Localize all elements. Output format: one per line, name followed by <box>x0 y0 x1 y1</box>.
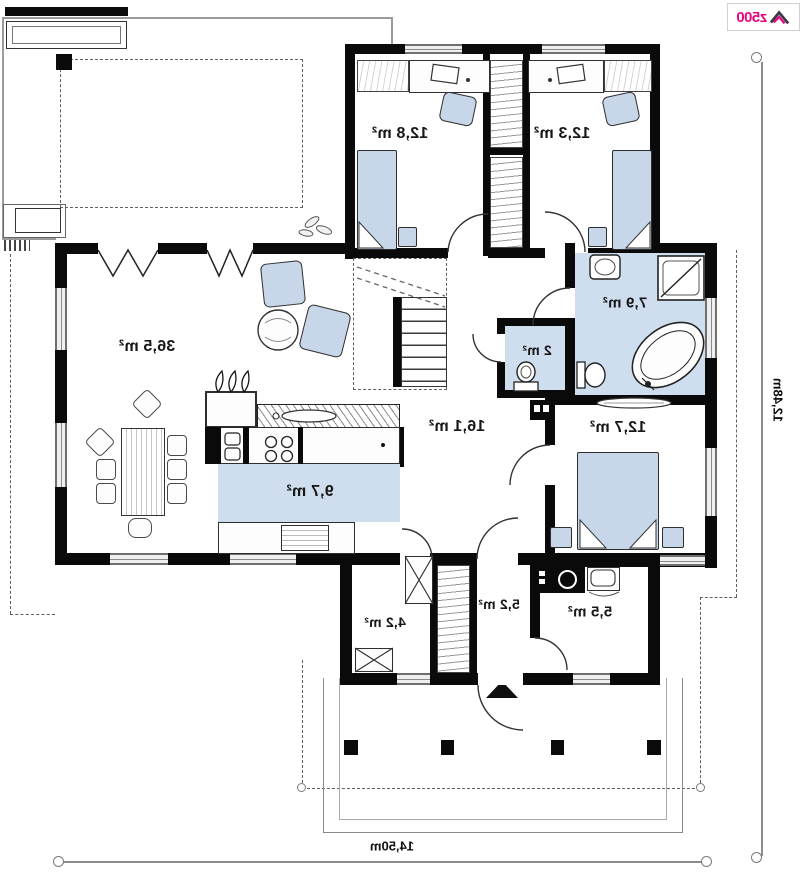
porch-column <box>344 740 358 755</box>
dimension-depth-label: 12,48m <box>771 378 786 422</box>
dining-chair <box>84 426 115 457</box>
desk <box>604 60 652 92</box>
door-arc <box>477 518 518 559</box>
wall <box>340 565 352 685</box>
armchair <box>298 303 352 358</box>
nightstand <box>588 227 607 247</box>
counter-divider <box>243 427 249 464</box>
roof-outline-right <box>700 597 701 788</box>
wc-floor <box>505 326 565 390</box>
terrace-edge <box>391 17 393 45</box>
window <box>55 423 67 487</box>
wall-hatch <box>4 240 30 251</box>
porch-inner <box>339 678 667 820</box>
bed-single <box>612 150 652 250</box>
dining-chair <box>167 435 187 456</box>
wall <box>648 553 660 685</box>
armchair <box>260 260 306 308</box>
terrace-wall <box>5 7 128 16</box>
bathroom-floor <box>575 253 705 395</box>
door-arc <box>535 638 567 670</box>
dining-table <box>121 428 165 516</box>
round-rug <box>258 310 298 350</box>
stair-treads <box>401 297 447 387</box>
leaf <box>303 215 320 230</box>
nightstand <box>398 227 417 247</box>
dining-chair <box>131 388 162 419</box>
window <box>110 553 168 565</box>
nightstand <box>550 527 572 548</box>
fireplace <box>205 391 257 428</box>
dimension-line-horizontal <box>58 861 707 863</box>
desk <box>409 60 490 93</box>
porch-column <box>551 740 564 755</box>
desk-chair <box>438 91 477 127</box>
bed-single <box>357 150 397 250</box>
wall <box>55 553 110 565</box>
roof-outline-right <box>736 250 737 597</box>
room-label-bathroom: 7,9 m² <box>603 295 648 312</box>
counter-divider <box>298 427 303 464</box>
window <box>397 673 430 685</box>
room-label-kitchen: 9,7 m² <box>286 483 333 501</box>
floor-plan: z500 <box>0 0 800 888</box>
wall <box>253 243 355 254</box>
dimension-marker <box>751 52 762 63</box>
flame-icon <box>216 371 223 392</box>
window <box>705 448 717 516</box>
folding-window <box>98 250 158 276</box>
door-arc <box>402 529 432 559</box>
roof-icon <box>770 9 790 25</box>
terrace-column <box>56 54 72 70</box>
dimension-width-label: 14,50m <box>370 839 414 854</box>
dining-chair <box>128 518 152 538</box>
roof-overhang-outline <box>60 59 303 208</box>
wall <box>470 553 477 677</box>
wall <box>555 395 717 405</box>
terrace-step-inner <box>15 208 61 233</box>
outline-marker <box>297 783 306 792</box>
wardrobe-box <box>355 648 393 672</box>
door-arc <box>510 445 550 485</box>
wall <box>345 44 355 259</box>
z500-logo: z500 <box>727 3 800 31</box>
logo-text: z500 <box>737 9 768 26</box>
room-label-hall: 16,1 m² <box>429 418 486 436</box>
room-label-wc: 2 m² <box>522 342 552 358</box>
wall <box>565 325 575 398</box>
wall <box>705 243 717 568</box>
dimension-marker <box>53 856 64 867</box>
window <box>542 44 605 54</box>
dining-chair <box>167 483 187 504</box>
terrace-window-inner <box>12 26 121 44</box>
roof-outline-right <box>700 597 737 598</box>
roof-outline-porch <box>302 660 303 788</box>
rug-pattern <box>265 319 291 342</box>
counter-end <box>205 427 221 464</box>
door-arc <box>473 334 501 362</box>
window <box>230 553 296 565</box>
door-arc <box>448 214 488 252</box>
washer-knob <box>539 571 545 576</box>
room-label-utility: 5,5 m² <box>568 604 613 621</box>
washer-knob <box>539 579 545 584</box>
window <box>705 298 717 358</box>
flame-icon <box>242 371 249 392</box>
leaf <box>315 224 332 236</box>
window <box>573 673 610 685</box>
wall <box>483 148 530 155</box>
leaf <box>299 229 314 237</box>
hall-closet <box>437 565 470 673</box>
wardrobe-box <box>405 556 433 604</box>
flame-icon <box>229 371 236 392</box>
meter-box-window <box>543 405 549 412</box>
wall <box>488 248 545 258</box>
stair-wall <box>393 297 401 387</box>
terrace-window-box <box>6 21 127 49</box>
fireplace-flames <box>216 371 249 392</box>
wall <box>158 243 207 254</box>
room-label-living: 36,5 m² <box>119 338 176 356</box>
dining-chair <box>96 483 116 504</box>
window <box>660 555 705 566</box>
meter-box-window <box>534 405 540 412</box>
kitchen-island <box>257 404 400 428</box>
porch-column <box>647 740 661 755</box>
washing-machine-drum <box>558 570 577 589</box>
plant-icon <box>299 215 333 238</box>
closet <box>490 157 523 248</box>
wall <box>545 485 555 560</box>
wall <box>497 318 505 334</box>
desk <box>357 60 409 92</box>
dimension-marker <box>701 856 712 867</box>
wall <box>497 390 575 398</box>
utility-sink <box>587 567 620 591</box>
wall <box>497 318 575 326</box>
window <box>405 44 462 54</box>
wall <box>565 243 575 288</box>
room-label-bedroom1: 12,8 m² <box>372 125 429 143</box>
door-gap <box>478 673 523 685</box>
room-label-wardrobe: 4,2 m² <box>364 614 406 630</box>
roof-outline-left <box>10 254 11 614</box>
desk <box>528 60 604 93</box>
bed-double <box>577 452 659 550</box>
dining-chair <box>96 459 116 480</box>
wall <box>296 553 400 565</box>
nightstand <box>662 527 684 548</box>
room-label-bedroom3: 12,7 m² <box>590 419 647 437</box>
window <box>55 288 67 350</box>
room-label-bedroom2: 12,3 m² <box>534 125 591 143</box>
wall <box>168 553 230 565</box>
utility-sink-edge <box>589 592 619 596</box>
outline-marker <box>696 783 705 792</box>
dining-chair <box>167 459 187 480</box>
room-label-entry: 5,2 m² <box>478 596 520 612</box>
wall <box>345 44 660 54</box>
desk-chair <box>601 91 640 127</box>
dimension-line-vertical <box>761 62 763 856</box>
porch-column <box>441 740 454 755</box>
appliance <box>281 525 329 551</box>
dimension-marker <box>751 852 762 863</box>
terrace-edge <box>2 17 392 19</box>
roof-outline-left <box>10 614 55 615</box>
closet <box>490 60 523 148</box>
folding-window <box>207 250 253 276</box>
